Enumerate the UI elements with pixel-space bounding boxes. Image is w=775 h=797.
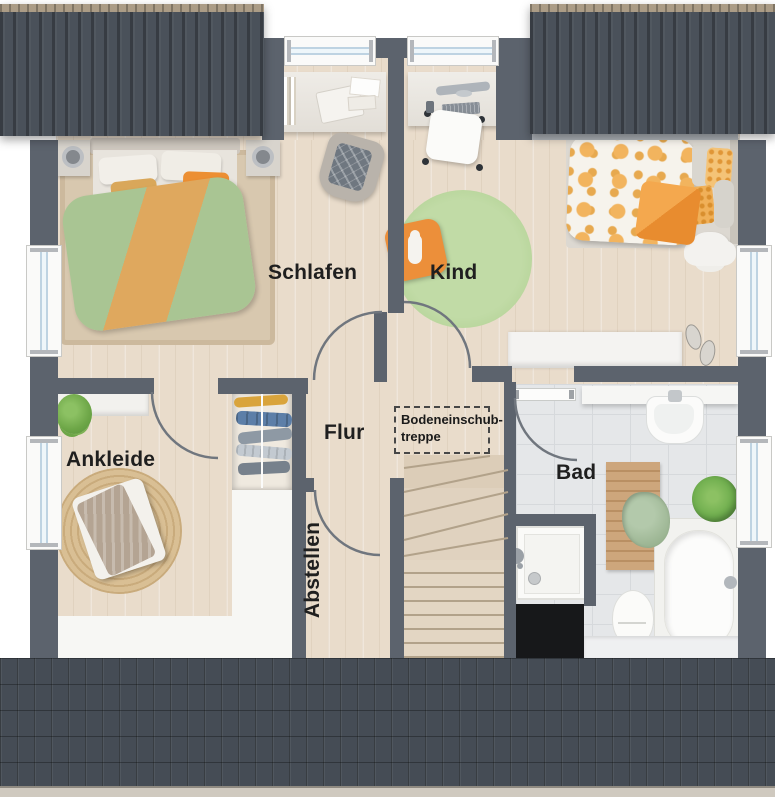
bed-bolster: [714, 180, 734, 228]
plant: [692, 476, 738, 522]
stair-winders: [404, 488, 508, 560]
room-label-kind: Kind: [430, 261, 477, 285]
door-leaf-schlafen: [374, 312, 387, 382]
book-stack: [348, 95, 377, 111]
wall-kind-south-left: [472, 366, 512, 382]
window-dormer-kind: [407, 36, 499, 66]
attic-hatch-annotation: Bodeneinschub- treppe: [394, 406, 490, 454]
hanging-clothes-blue: [236, 411, 293, 428]
sideboard: [508, 332, 682, 368]
potted-plant: [56, 394, 92, 434]
bath-ledge: [584, 636, 740, 658]
wall-shower-north: [504, 514, 596, 526]
stair-landing: [404, 455, 508, 488]
exterior-wall-left: [30, 140, 58, 658]
window-dormer-schlafen: [284, 36, 376, 66]
desk-stool: [425, 109, 483, 166]
window-bad-right: [736, 436, 772, 548]
shaft-void: [516, 604, 584, 658]
wardrobe-rail: [261, 392, 263, 488]
roof-top-left: [0, 4, 264, 136]
roof-top-right: [530, 4, 775, 134]
book-stack: [349, 76, 381, 97]
roof-ridge-top-left: [0, 4, 264, 12]
towel-green: [622, 492, 670, 548]
roof-ridge-top-right: [530, 4, 775, 12]
wall-schlafen-south-left: [56, 378, 154, 394]
table-lamp: [62, 146, 84, 168]
room-label-ankleide: Ankleide: [66, 448, 155, 472]
wall-abstellen-stairs: [390, 478, 404, 658]
table-lamp: [252, 146, 274, 168]
window-schlafen-left: [26, 245, 62, 357]
window-kind-right: [736, 245, 772, 357]
window-ankleide-left: [26, 436, 62, 550]
monitor-stand: [456, 90, 472, 97]
room-label-abstellen: Abstellen: [301, 490, 325, 650]
knee-wall-area-bottom: [56, 616, 292, 658]
shower-drain: [528, 572, 541, 585]
sink-faucet: [668, 390, 682, 402]
wall-kind-south-right: [574, 366, 740, 382]
room-label-flur: Flur: [324, 421, 364, 445]
staircase: [404, 560, 508, 658]
exterior-wall-right: [738, 140, 766, 658]
wall-shower-east: [584, 526, 596, 606]
bathtub-basin: [664, 530, 734, 650]
stool-leg: [422, 158, 429, 165]
attic-hatch-label-line2: treppe: [401, 428, 488, 445]
dormer-side-wall-left: [262, 38, 284, 140]
shower-tray-inner: [524, 534, 580, 594]
wall-schlafen-kind: [388, 55, 404, 313]
door-leaf-bad: [512, 388, 576, 401]
room-label-bad: Bad: [556, 461, 596, 485]
duvet: [59, 174, 258, 334]
roof-gutter-bottom: [0, 786, 775, 797]
floor-plan: Schlafen Kind Ankleide Flur Bad Abstelle…: [0, 0, 775, 797]
attic-hatch-label-line1: Bodeneinschub-: [401, 411, 488, 428]
orange-throw-blanket: [634, 180, 701, 246]
cloud-side-table: [690, 232, 730, 266]
toilet-seat-line: [618, 622, 646, 624]
tub-faucet: [724, 576, 737, 589]
roof-bottom: [0, 658, 775, 788]
toy-bunny: [408, 234, 422, 264]
stool-leg: [476, 164, 483, 171]
dormer-side-wall-right: [496, 38, 532, 140]
room-label-schlafen: Schlafen: [268, 261, 357, 285]
